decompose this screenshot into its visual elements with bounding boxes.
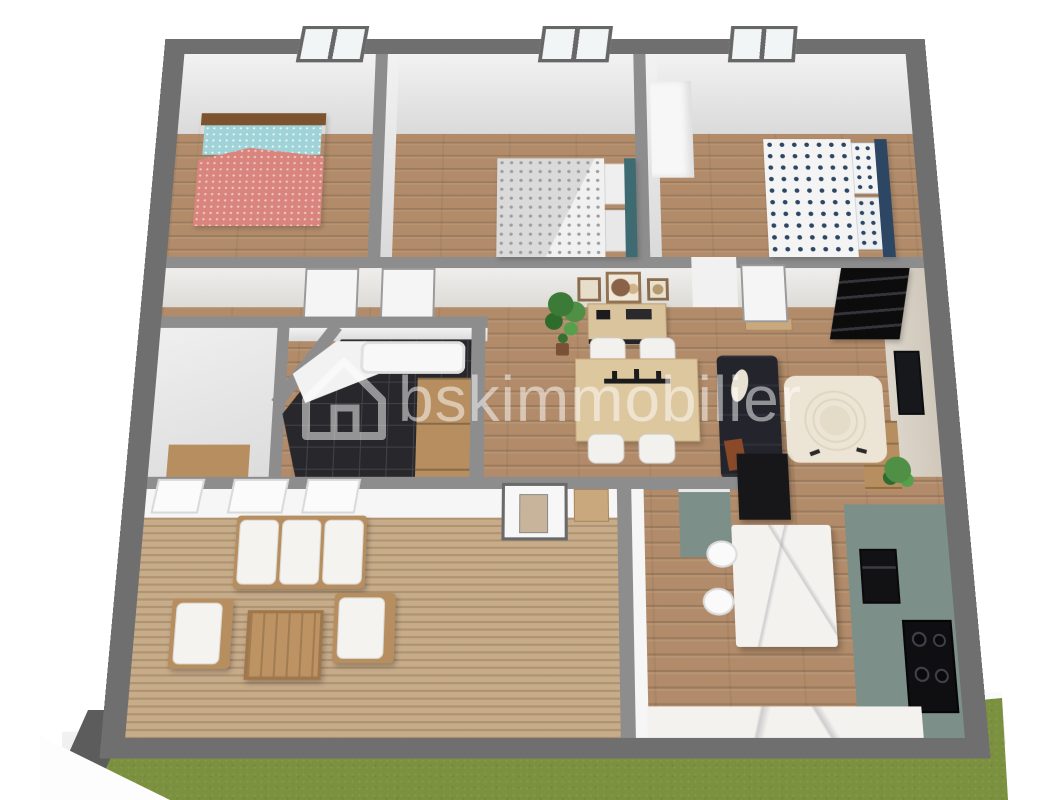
bed-pillow bbox=[605, 210, 627, 252]
bed-blanket bbox=[763, 139, 859, 257]
floor-plan-render: bskimmobilier bbox=[0, 0, 1039, 800]
double-bed-grey bbox=[496, 158, 637, 257]
open-door-leaf bbox=[380, 268, 436, 322]
bar-stool bbox=[706, 540, 738, 567]
outdoor-coffee-table bbox=[243, 610, 323, 680]
bed-blanket bbox=[496, 158, 605, 257]
plant-leaves bbox=[548, 292, 574, 316]
terrace-window-icon bbox=[301, 479, 361, 514]
bedroom-window-icon bbox=[296, 26, 370, 63]
decor-object bbox=[596, 310, 610, 319]
open-door-leaf bbox=[303, 268, 360, 322]
cooktop bbox=[902, 620, 960, 713]
double-bed-navy bbox=[763, 139, 896, 257]
tv-icon bbox=[893, 351, 924, 415]
outdoor-armchair bbox=[332, 593, 396, 663]
burner-icon bbox=[931, 633, 947, 648]
single-bed bbox=[193, 113, 327, 226]
outdoor-sofa bbox=[232, 516, 367, 589]
decor-object bbox=[626, 309, 652, 319]
bedroom-window-icon bbox=[538, 26, 613, 63]
wc-wall bbox=[161, 317, 488, 328]
sofa-cushion bbox=[236, 520, 280, 585]
kitchen-counter bbox=[647, 706, 924, 737]
terrace-window-icon bbox=[150, 479, 205, 514]
picture-frame-icon bbox=[606, 272, 642, 304]
sofa-cushion bbox=[322, 520, 364, 585]
terrace-door-leaf bbox=[501, 483, 567, 541]
oven-icon bbox=[859, 549, 901, 604]
sofa-cushion bbox=[279, 520, 322, 585]
bed-pillow bbox=[604, 164, 626, 205]
door-threshold bbox=[574, 489, 609, 522]
bed-blanket bbox=[193, 148, 325, 226]
kitchen-island bbox=[731, 525, 838, 647]
bar-stool bbox=[702, 588, 735, 616]
terrace-window-icon bbox=[227, 479, 290, 514]
picture-frame-icon bbox=[647, 278, 669, 300]
wc-cabinet bbox=[166, 445, 250, 477]
watermark-text: bskimmobilier bbox=[398, 362, 802, 436]
watermark: bskimmobilier bbox=[296, 348, 836, 448]
shelving-unit bbox=[830, 268, 910, 339]
rug-mark bbox=[856, 447, 867, 453]
open-door-leaf bbox=[740, 264, 788, 322]
burner-icon bbox=[910, 631, 928, 648]
wardrobe bbox=[650, 81, 695, 178]
bed-headboard bbox=[201, 113, 326, 125]
armchair-cushion bbox=[336, 597, 385, 659]
kitchen-tall-cabinet bbox=[737, 454, 791, 520]
burner-icon bbox=[913, 666, 931, 684]
burner-icon bbox=[933, 668, 950, 685]
rug-mark bbox=[809, 449, 820, 456]
plant-icon bbox=[540, 290, 586, 356]
armchair-cushion bbox=[172, 603, 223, 665]
door-glass-pane bbox=[519, 494, 548, 533]
bedroom-window-icon bbox=[728, 26, 798, 63]
door-opening bbox=[691, 257, 738, 307]
bed-headboard bbox=[624, 158, 638, 257]
outdoor-armchair bbox=[167, 598, 234, 668]
outer-wall-south bbox=[99, 738, 990, 758]
house-logo-icon bbox=[296, 348, 392, 442]
